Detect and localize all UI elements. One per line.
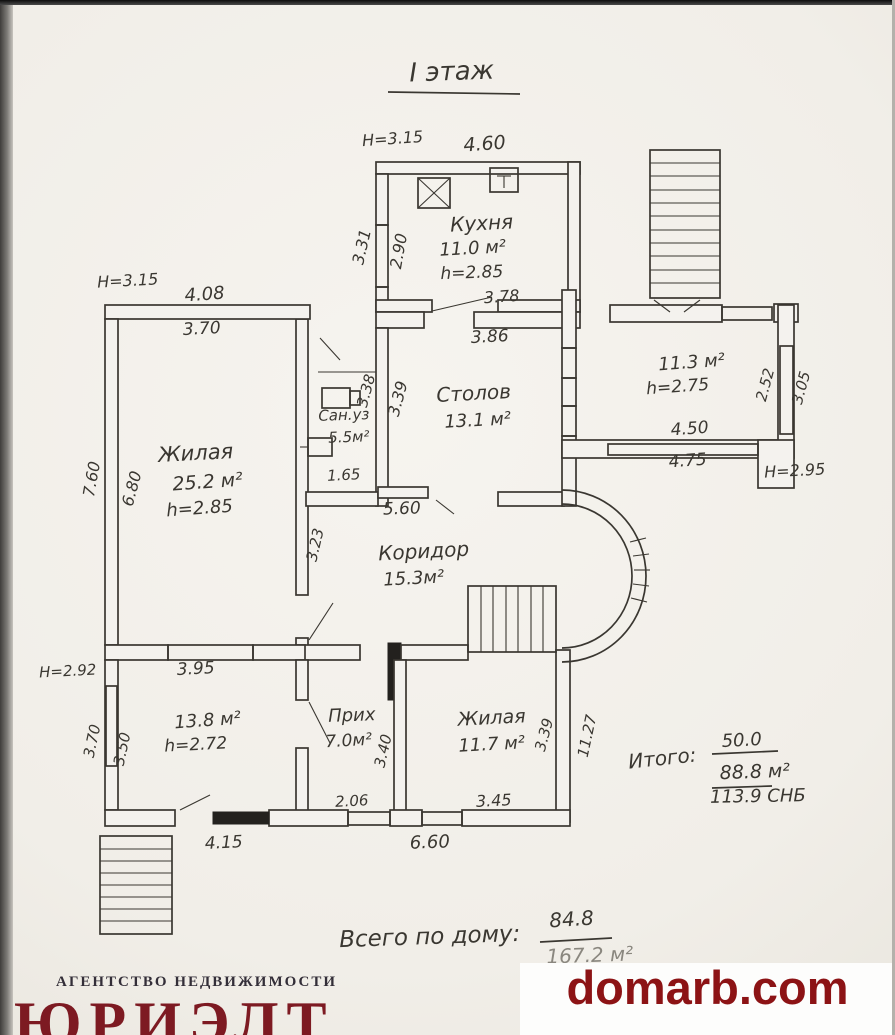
dim: 4.75	[668, 450, 707, 473]
house-total-numerator: 84.8	[548, 905, 594, 932]
stairs-internal	[468, 586, 556, 652]
agency-tagline: АГЕНТСТВО НЕДВИЖИМОСТИ	[56, 974, 337, 991]
dim: H=3.15	[97, 269, 159, 291]
watermark-text: domarb.com	[566, 963, 848, 1012]
room-area: 13.1 м²	[444, 408, 512, 432]
room-area: 25.2 м²	[172, 469, 244, 496]
page-title: I этаж	[409, 56, 495, 89]
room-height: h=2.75	[646, 375, 710, 399]
room-area: 11.7 м²	[458, 732, 526, 756]
dining-window-1	[562, 348, 576, 378]
dim: 3.70	[80, 723, 105, 759]
totals-snb: 113.9 СНБ	[710, 785, 806, 808]
room-name: Жилая	[155, 439, 233, 467]
room-area: 11.0 м²	[439, 236, 507, 260]
dim: 3.78	[483, 286, 520, 307]
dim: 3.45	[475, 790, 512, 811]
scanned-floor-plan-page: I этаж H=3.15 4.60 3.31 2.90 Кухня 11.0 …	[0, 0, 895, 1035]
dim: H=2.95	[764, 459, 826, 481]
room-name: Прих	[328, 704, 376, 727]
kitchen-window	[376, 225, 388, 287]
dim: 6.80	[118, 469, 146, 508]
dim: 2.90	[386, 232, 411, 270]
room-name: Сан.уз	[318, 405, 370, 425]
room-height: h=2.85	[440, 262, 504, 284]
room-height: h=2.85	[166, 496, 234, 522]
bedroom-bottom-window	[422, 812, 462, 825]
room-area: 13.8 м²	[174, 708, 242, 734]
room-name: Жилая	[456, 705, 526, 731]
stairs-top-right	[650, 150, 720, 298]
room-area: 11.3 м²	[658, 350, 726, 376]
dim: 3.95	[176, 658, 215, 680]
scan-top-edge	[0, 0, 895, 5]
dim: 2.52	[752, 366, 778, 403]
agency-logo: АГЕНТСТВО НЕДВИЖИМОСТИ ЮРИЭЛТ	[14, 974, 337, 1035]
scan-left-edge	[0, 0, 13, 1035]
totals-numerator: 50.0	[721, 729, 762, 752]
dim: 11.27	[574, 713, 601, 759]
room-area: 7.0м²	[325, 730, 373, 752]
stairs-bottom-left	[100, 836, 172, 934]
dim: 3.39	[531, 716, 557, 753]
dim: 2.06	[335, 791, 369, 811]
room-name: Кухня	[450, 209, 514, 236]
dim: 5.60	[383, 498, 422, 519]
dim: 3.40	[371, 733, 396, 770]
dim: 3.31	[348, 227, 375, 266]
porch-window	[722, 307, 772, 320]
dim: 1.65	[327, 465, 361, 485]
totals-denominator: 88.8 м²	[719, 760, 790, 784]
dim: 4.50	[670, 418, 709, 441]
dim: 7.60	[79, 460, 104, 498]
dining-window-2	[562, 406, 576, 436]
room-area: 15.3м²	[383, 566, 445, 590]
bay-arc	[562, 490, 650, 662]
room-height: h=2.72	[164, 733, 228, 756]
totals-label: Итого:	[627, 743, 697, 774]
floor-plan-drawing: I этаж H=3.15 4.60 3.31 2.90 Кухня 11.0 …	[0, 0, 895, 1035]
room-area: 5.5м²	[328, 427, 370, 446]
room-name: Коридор	[378, 537, 470, 566]
dim: 4.08	[184, 283, 225, 307]
watermark-box: domarb.com	[520, 963, 895, 1035]
stove-icon	[418, 178, 450, 208]
room-name: Столов	[436, 379, 512, 407]
dim: 4.60	[463, 132, 507, 157]
dim: 3.70	[182, 318, 221, 340]
house-total-label: Всего по дому:	[339, 921, 521, 953]
agency-name: ЮРИЭЛТ	[14, 993, 337, 1035]
dim: 6.60	[409, 831, 450, 853]
dim: 4.15	[204, 832, 243, 854]
dim: 3.86	[470, 326, 509, 348]
labels: I этаж H=3.15 4.60 3.31 2.90 Кухня 11.0 …	[39, 56, 826, 969]
dim: H=3.15	[361, 127, 423, 150]
dim: H=2.92	[39, 661, 97, 682]
hall-bottom-window	[348, 812, 390, 825]
bottom-dark-window	[213, 812, 269, 824]
